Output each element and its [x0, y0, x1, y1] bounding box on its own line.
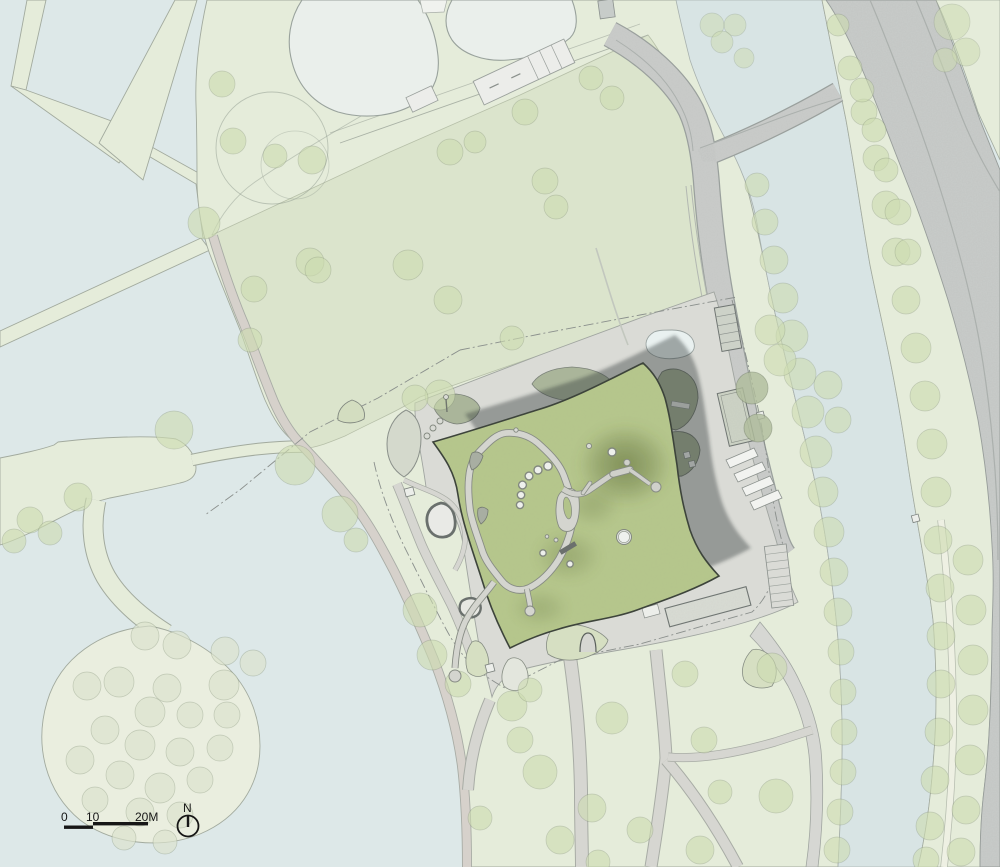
svg-text:N: N: [183, 801, 192, 815]
svg-text:10: 10: [86, 810, 100, 824]
svg-text:0: 0: [61, 810, 68, 824]
svg-text:20M: 20M: [135, 810, 158, 824]
